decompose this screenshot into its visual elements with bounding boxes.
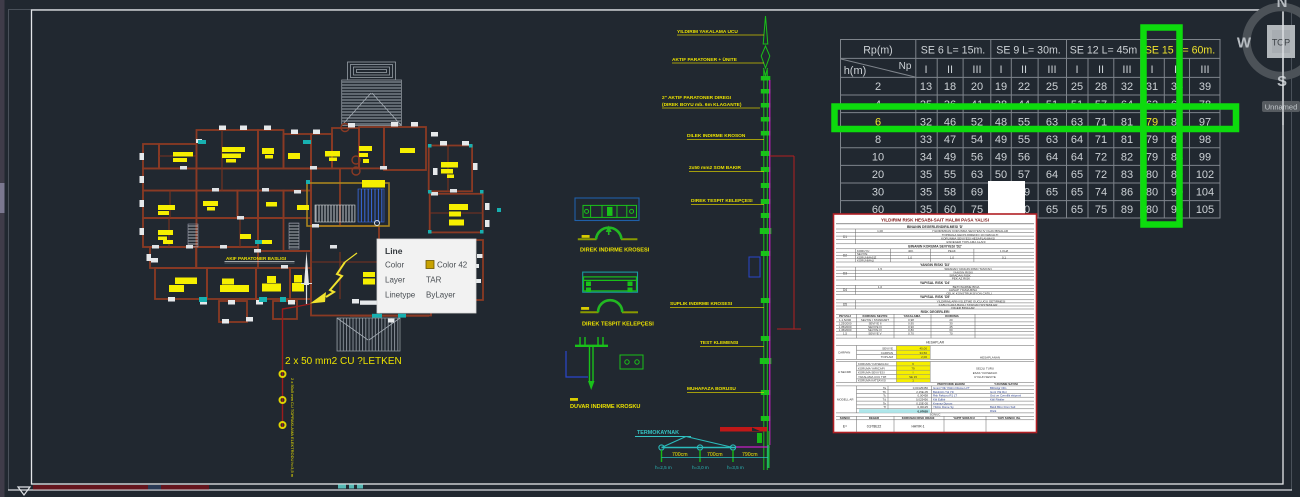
- svg-text:83: 83: [1121, 169, 1133, 181]
- svg-text:0,70: 0,70: [908, 331, 914, 335]
- svg-text:SUPLIK INDIRME KROSESI: SUPLIK INDIRME KROSESI: [670, 301, 733, 307]
- svg-text:(DIREK BOYU mb. 6m KLAGANTE): (DIREK BOYU mb. 6m KLAGANTE): [662, 102, 742, 108]
- svg-text:h=3,0 m: h=3,0 m: [692, 465, 709, 470]
- svg-text:25: 25: [1046, 81, 1058, 93]
- svg-text:70: 70: [949, 331, 953, 335]
- svg-text:57: 57: [1018, 169, 1030, 181]
- svg-text:63: 63: [971, 169, 983, 181]
- svg-text:SE 12 L= 45m: SE 12 L= 45m: [1070, 45, 1138, 57]
- svg-text:1,5: 1,5: [878, 267, 883, 271]
- svg-text:A SECIMI: A SECIMI: [838, 370, 851, 374]
- svg-text:65: 65: [1071, 204, 1083, 216]
- svg-text:HESAPLANAN: HESAPLANAN: [980, 356, 1000, 360]
- svg-text:22: 22: [1018, 81, 1030, 93]
- svg-text:55: 55: [944, 169, 956, 181]
- svg-text:MUHAFAZA BORUSU: MUHAFAZA BORUSU: [687, 386, 736, 392]
- svg-text:400.: 400.: [908, 249, 914, 253]
- svg-text:CARPAN: CARPAN: [881, 351, 893, 355]
- svg-text:1,0: 1,0: [878, 285, 883, 289]
- svg-text:III: III: [1047, 64, 1056, 76]
- svg-text:65: 65: [1046, 187, 1058, 199]
- svg-text:Kbll Rlskler: Kbll Rlskler: [990, 398, 1004, 402]
- svg-text:47: 47: [944, 134, 956, 146]
- svg-text:35: 35: [920, 187, 932, 199]
- svg-text:80: 80: [1146, 169, 1158, 181]
- svg-text:25: 25: [1071, 81, 1083, 93]
- svg-text:82: 82: [1121, 152, 1133, 164]
- svg-text:58: 58: [944, 187, 956, 199]
- svg-text:49: 49: [995, 134, 1007, 146]
- svg-text:0,97655: 0,97655: [918, 409, 929, 413]
- svg-text:79: 79: [1146, 152, 1158, 164]
- svg-text:DIREK INDIRME KROSESI: DIREK INDIRME KROSESI: [580, 248, 650, 254]
- svg-text:Rp(m): Rp(m): [863, 45, 892, 57]
- svg-text:SE 9 L= 30m.: SE 9 L= 30m.: [996, 45, 1060, 57]
- svg-text:64: 64: [1046, 152, 1058, 164]
- svg-text:S: S: [1277, 73, 1287, 90]
- svg-text:III: III: [1200, 64, 1209, 76]
- svg-text:31: 31: [1146, 81, 1158, 93]
- svg-text:TOPLAM: TOPLAM: [881, 355, 894, 359]
- svg-text:13: 13: [920, 81, 932, 93]
- svg-text:D3: D3: [843, 272, 847, 276]
- svg-text:64: 64: [1071, 134, 1083, 146]
- svg-text:PEAK: PEAK: [948, 249, 956, 253]
- svg-text:YAPISAL RISK 'D5': YAPISAL RISK 'D5': [920, 295, 950, 299]
- svg-text:II: II: [1021, 64, 1027, 76]
- svg-text:E=: E=: [843, 425, 847, 429]
- svg-text:II: II: [947, 64, 953, 76]
- svg-text:700cm: 700cm: [672, 452, 688, 458]
- svg-text:HAYIR-1: HAYIR-1: [911, 425, 924, 429]
- svg-text:SEVIYE V: SEVIYE V: [868, 331, 881, 335]
- svg-text:AKTIF PARATONER + ÜNITE: AKTIF PARATONER + ÜNITE: [672, 56, 738, 63]
- svg-text:Np: Np: [899, 61, 912, 72]
- svg-text:49: 49: [944, 152, 956, 164]
- svg-text:h(m): h(m): [844, 65, 867, 77]
- svg-text:1,00: 1,00: [877, 229, 883, 233]
- svg-text:1,0: 1,0: [950, 255, 954, 259]
- svg-text:DIREK TESPIT KELEPÇESI: DIREK TESPIT KELEPÇESI: [582, 322, 654, 328]
- svg-text:DILEK INDIRME KROSON: DILEK INDIRME KROSON: [687, 133, 746, 139]
- svg-text:Color: Color: [385, 261, 404, 270]
- svg-text:h=3,5 m: h=3,5 m: [727, 465, 744, 470]
- svg-text:104: 104: [1196, 187, 1214, 199]
- svg-text:30: 30: [872, 187, 884, 199]
- svg-text:64: 64: [1046, 169, 1058, 181]
- svg-text:h=2,5 m: h=2,5 m: [655, 465, 672, 470]
- svg-text:75: 75: [1095, 204, 1107, 216]
- svg-text:65: 65: [1046, 204, 1058, 216]
- svg-text:MODELL AR: MODELL AR: [837, 398, 853, 402]
- svg-text:79: 79: [1146, 134, 1158, 146]
- svg-text:0,1: 0,1: [1002, 255, 1006, 259]
- svg-text:69: 69: [971, 187, 983, 199]
- svg-text:CARPAN: CARPAN: [838, 351, 850, 355]
- svg-text:20: 20: [971, 81, 983, 93]
- svg-text:56: 56: [1018, 152, 1030, 164]
- svg-text:KORUNAN RISK ORANI: KORUNAN RISK ORANI: [902, 416, 935, 420]
- svg-text:Color 42: Color 42: [437, 261, 468, 270]
- svg-text:98: 98: [1199, 134, 1211, 146]
- svg-text:89: 89: [1121, 204, 1133, 216]
- svg-text:KORUNMALI: KORUNMALI: [857, 259, 874, 263]
- svg-text:0,978E22: 0,978E22: [867, 425, 882, 429]
- svg-text:700cm: 700cm: [707, 452, 723, 458]
- svg-text:39: 39: [1199, 81, 1211, 93]
- svg-text:Unnamed: Unnamed: [1265, 103, 1298, 112]
- svg-text:YILDIRIM RISK HESABI-SAIT HALI: YILDIRIM RISK HESABI-SAIT HALIM PASA YAL…: [881, 218, 989, 223]
- svg-text:81: 81: [1121, 134, 1133, 146]
- svg-text:105: 105: [1196, 204, 1214, 216]
- svg-text:AKIF PARATONER BASLIGI: AKIF PARATONER BASLIGI: [226, 256, 286, 261]
- svg-text:DUVAR INDIRME KROSKU: DUVAR INDIRME KROSKU: [570, 404, 640, 410]
- svg-text:1,5: 1,5: [843, 331, 847, 335]
- svg-text:BINANIN DEGERLENDIRILMESI 'D': BINANIN DEGERLENDIRILMESI 'D': [907, 225, 963, 229]
- svg-text:64: 64: [1071, 152, 1083, 164]
- svg-text:PEK AZ RISK: PEK AZ RISK: [952, 277, 970, 281]
- svg-text:2 x 50 mm2 CU ?LETKEN: 2 x 50 mm2 CU ?LETKEN: [285, 356, 402, 367]
- svg-text:80: 80: [1146, 187, 1158, 199]
- svg-text:DIREK TESPIT KELEPÇESI: DIREK TESPIT KELEPÇESI: [691, 198, 753, 204]
- svg-text:72: 72: [1095, 169, 1107, 181]
- svg-text:D4: D4: [843, 288, 847, 292]
- svg-text:1,0: 1,0: [908, 255, 912, 259]
- svg-text:TOP: TOP: [1272, 38, 1290, 48]
- svg-text:I: I: [999, 64, 1002, 76]
- svg-text:W: W: [1237, 35, 1252, 52]
- svg-text:28: 28: [1095, 81, 1107, 93]
- svg-text:8: 8: [875, 134, 881, 146]
- svg-text:74: 74: [1095, 187, 1107, 199]
- svg-text:34: 34: [920, 152, 932, 164]
- svg-text:D1: D1: [843, 235, 847, 239]
- svg-text:19: 19: [995, 81, 1007, 93]
- svg-text:II: II: [1098, 64, 1104, 76]
- svg-text:I: I: [1075, 64, 1078, 76]
- svg-text:32: 32: [1121, 81, 1133, 93]
- svg-text:N: N: [1277, 0, 1288, 11]
- svg-text:DIGER BINALAR: DIGER BINALAR: [951, 306, 975, 310]
- svg-text:Layer: Layer: [385, 276, 405, 285]
- svg-text:99: 99: [1199, 152, 1211, 164]
- svg-text:Tf: Tf: [883, 405, 886, 409]
- svg-text:YAPIT SONUCU: YAPIT SONUCU: [953, 416, 975, 420]
- svg-text:KORUMA KATSAYISI: KORUMA KATSAYISI: [858, 379, 886, 383]
- svg-text:2x50 mm2 SOM BAKIR: 2x50 mm2 SOM BAKIR: [689, 165, 742, 171]
- svg-text:2: 2: [875, 81, 881, 93]
- svg-text:III: III: [972, 64, 981, 76]
- svg-text:56: 56: [971, 152, 983, 164]
- svg-text:55: 55: [1018, 134, 1030, 146]
- svg-text:34,50: 34,50: [919, 351, 927, 355]
- svg-text:86: 86: [1121, 187, 1133, 199]
- svg-text:72: 72: [1095, 152, 1107, 164]
- svg-text:D5: D5: [843, 303, 847, 307]
- svg-text:2,00: 2,00: [921, 355, 927, 359]
- svg-text:YAPI SONUC ISL: YAPI SONUC ISL: [997, 416, 1020, 420]
- svg-text:D2: D2: [843, 254, 847, 258]
- svg-text:2" AKTIF PARATONER DIREGI: 2" AKTIF PARATONER DIREGI: [662, 95, 732, 101]
- svg-text:80: 80: [1146, 204, 1158, 216]
- svg-text:33: 33: [920, 134, 932, 146]
- svg-text:790cm: 790cm: [742, 452, 758, 458]
- svg-text:TAR: TAR: [426, 276, 442, 285]
- svg-text:Linetype: Linetype: [385, 291, 416, 300]
- svg-text:71: 71: [1095, 134, 1107, 146]
- svg-text:ByLayer: ByLayer: [426, 291, 456, 300]
- svg-text:18: 18: [944, 81, 956, 93]
- svg-text:CELIK KONSTRUKSIYON CATILI: CELIK KONSTRUKSIYON CATILI: [946, 291, 992, 295]
- svg-text:I: I: [924, 64, 927, 76]
- svg-text:I: I: [1150, 64, 1153, 76]
- svg-text:UYGUN SEVIYE: UYGUN SEVIYE: [974, 375, 996, 379]
- svg-text:TEST KLEMENSI: TEST KLEMENSI: [700, 340, 739, 346]
- svg-text:Line: Line: [385, 246, 403, 256]
- svg-text:65: 65: [1071, 169, 1083, 181]
- svg-text:III: III: [1122, 64, 1131, 76]
- svg-text:10: 10: [872, 152, 884, 164]
- svg-text:SONUC: SONUC: [840, 416, 851, 420]
- svg-text:ESAS YUKSEKLIK: ESAS YUKSEKLIK: [973, 371, 998, 375]
- svg-text:54: 54: [971, 134, 983, 146]
- svg-text:63: 63: [1046, 134, 1058, 146]
- svg-text:DEGER: DEGER: [869, 416, 880, 420]
- svg-text:TERMOKAYNAK: TERMOKAYNAK: [637, 430, 679, 436]
- svg-text:35: 35: [920, 169, 932, 181]
- svg-text:SE 6 L= 15m.: SE 6 L= 15m.: [921, 45, 985, 57]
- svg-text:2 x 50x5 mm CU TOPRAKLAMA ELEK: 2 x 50x5 mm CU TOPRAKLAMA ELEKTRODU h=3,…: [290, 378, 295, 478]
- svg-text:HESAPLAR: HESAPLAR: [926, 341, 945, 345]
- svg-text:Rlslk: Rlslk: [990, 409, 997, 413]
- svg-text:YILDIRIM YAKALAMA UCU: YILDIRIM YAKALAMA UCU: [677, 29, 738, 35]
- svg-text:YAPISAL RISK 'D4': YAPISAL RISK 'D4': [920, 281, 950, 285]
- svg-text:65: 65: [1071, 187, 1083, 199]
- svg-text:102: 102: [1196, 169, 1214, 181]
- svg-text:1 KHZ: 1 KHZ: [1000, 249, 1008, 253]
- svg-text:50: 50: [995, 169, 1007, 181]
- svg-text:49: 49: [995, 152, 1007, 164]
- svg-text:Ylldrm Dsme Sy: Ylldrm Dsme Sy: [933, 405, 954, 409]
- svg-text:RISK DEGERLERI: RISK DEGERLERI: [921, 310, 950, 314]
- svg-text:20: 20: [872, 169, 884, 181]
